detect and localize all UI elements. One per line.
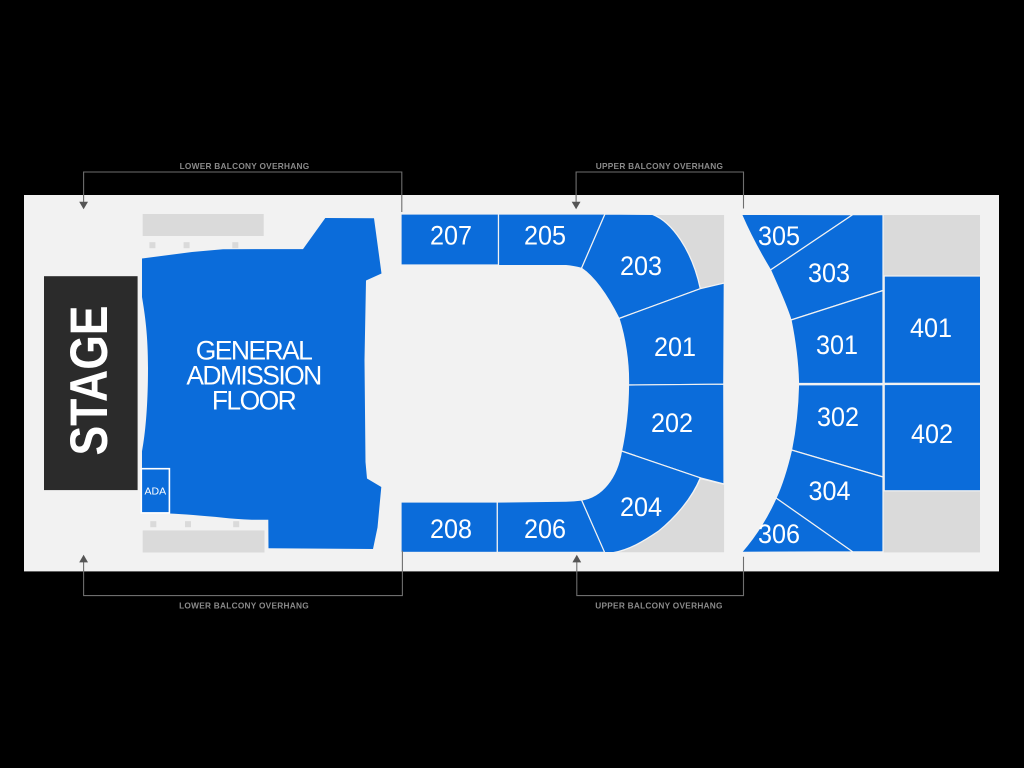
svg-text:LOWER BALCONY OVERHANG: LOWER BALCONY OVERHANG [180,161,310,171]
svg-text:303: 303 [808,258,850,288]
svg-text:302: 302 [817,402,859,432]
svg-text:UPPER BALCONY OVERHANG: UPPER BALCONY OVERHANG [596,161,724,171]
svg-text:UPPER BALCONY OVERHANG: UPPER BALCONY OVERHANG [595,600,723,610]
svg-text:201: 201 [654,332,696,362]
svg-text:206: 206 [524,514,566,544]
svg-text:204: 204 [620,492,662,522]
svg-text:207: 207 [430,221,472,251]
svg-text:205: 205 [524,221,566,251]
svg-text:STAGE: STAGE [60,306,119,456]
svg-text:306: 306 [758,519,800,549]
svg-text:301: 301 [816,330,858,360]
svg-text:FLOOR: FLOOR [212,386,296,416]
svg-text:202: 202 [651,408,693,438]
svg-text:LOWER BALCONY OVERHANG: LOWER BALCONY OVERHANG [179,600,309,610]
svg-text:304: 304 [809,476,851,506]
svg-text:305: 305 [758,221,800,251]
svg-text:402: 402 [911,419,953,449]
svg-text:ADA: ADA [145,486,167,498]
svg-text:208: 208 [430,514,472,544]
svg-text:203: 203 [620,251,662,281]
svg-text:401: 401 [910,313,952,343]
